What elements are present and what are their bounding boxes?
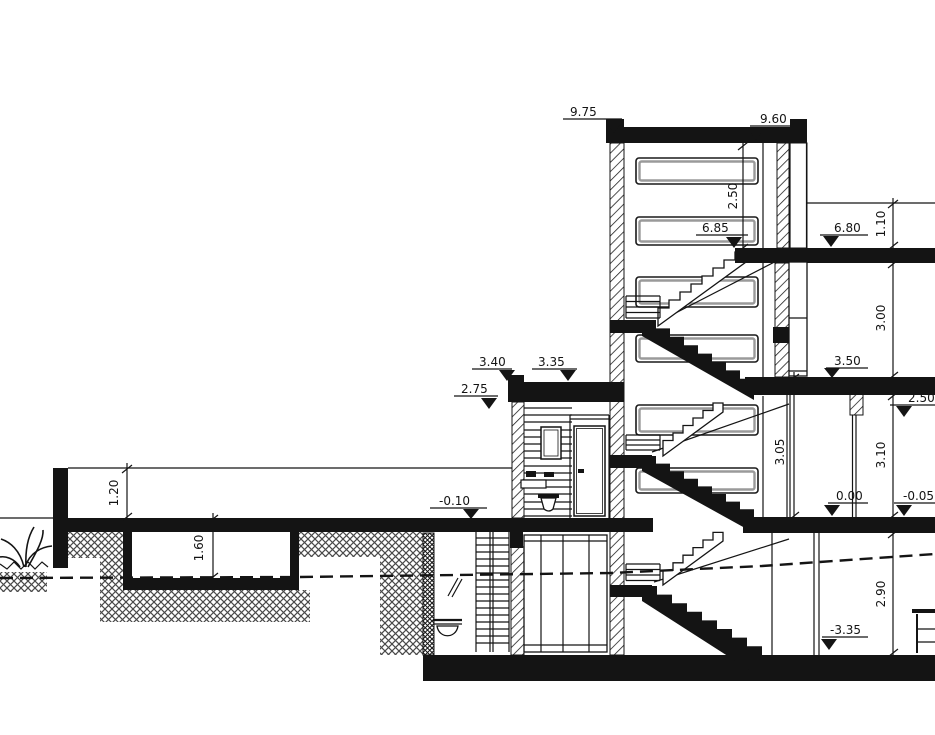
level-text: 2.50 [908,391,935,405]
fixture [544,472,554,477]
ground-slab-left [512,518,653,532]
dim-text: 2.90 [874,581,888,608]
level-text: 3.50 [834,354,861,368]
fixture [526,471,536,477]
door-handle [578,469,584,473]
stair-core-right-wall-mid [775,263,789,377]
foundation-slab [423,655,935,681]
counter [521,480,546,488]
architectural-section-drawing: 2.50 1.10 3.00 3.05 3.10 2.90 1.20 1.60 … [0,0,935,735]
door [570,415,609,518]
mid-floor-slab [745,377,935,395]
stair-core-right-wall-upper [777,143,789,248]
dim-text: 1.10 [874,211,888,238]
window-pier [850,393,863,415]
level-text: 3.35 [538,355,565,369]
wardrobe [789,262,807,376]
basement-left-wall [423,533,434,655]
dim-text: 2.50 [726,183,740,210]
level-text: 9.75 [570,105,597,119]
pool-floor [123,578,299,590]
level-text: 3.40 [479,355,506,369]
lintel [773,327,790,343]
section-drawing-svg: 2.50 1.10 3.00 3.05 3.10 2.90 1.20 1.60 … [0,0,935,735]
terrace-slab [63,518,512,532]
stair-core-right-wall-leaf [789,143,807,248]
louver-band [636,158,758,184]
retaining-wall [53,468,68,568]
dim-text: 3.00 [874,305,888,332]
dim-text: 3.05 [773,439,787,466]
annex-roof-slab [510,382,624,402]
tower-roof-lip-right [790,119,807,143]
level-text: 9.60 [760,112,787,126]
level-text: -3.35 [830,623,861,637]
level-text: 6.85 [702,221,729,235]
basement-mid-wall [511,547,524,655]
dim-text: 1.60 [192,535,206,562]
level-text: 0.00 [836,489,863,503]
level-text: 2.75 [461,382,488,396]
level-text: -0.05 [903,489,934,503]
dim-text: 3.10 [874,442,888,469]
pool-wall-right [290,523,299,590]
annex-wall-base [510,532,523,548]
ground-slab-right [743,517,935,533]
annex-left-wall [512,402,524,518]
louver-band [636,217,758,245]
tower-roof-slab [610,127,807,143]
level-text: 6.80 [834,221,861,235]
dim-text: 1.20 [107,480,121,507]
level-text: -0.10 [439,494,470,508]
upper-floor-slab [735,248,935,263]
